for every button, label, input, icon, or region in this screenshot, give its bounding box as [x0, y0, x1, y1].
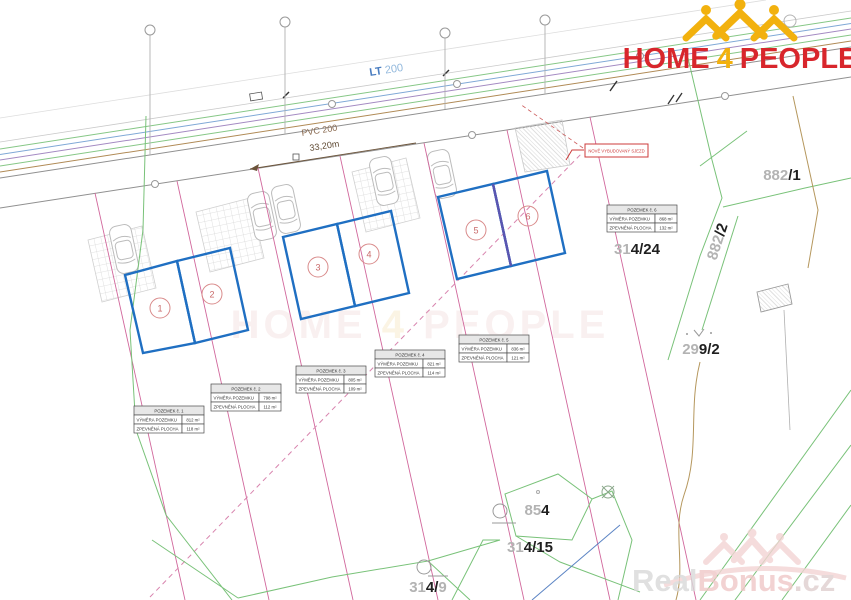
small-square-symbol	[293, 154, 299, 160]
division-line	[590, 117, 696, 600]
driveway-hatch-area	[515, 120, 570, 172]
parcel-label-314-9: 314/9	[409, 579, 447, 596]
table-cell: 132 m²	[659, 225, 673, 230]
manhole-circle-icon	[469, 132, 476, 139]
parcel-label-314-15: 314/15	[507, 539, 553, 556]
plot-table-1: POZEMEK č. 1 VÝMĚRA POZEMKU 812 m² ZPEVN…	[134, 406, 204, 433]
table-cell: 112 m²	[263, 404, 277, 409]
table-header: POZEMEK č. 5	[479, 337, 509, 342]
realbonus-crown-icon	[762, 544, 798, 562]
manhole-circle-icon	[329, 101, 336, 108]
parcel-boundary	[700, 131, 747, 166]
site-plan-drawing: LT200 PVC 200 33,20m HOME 4 PEOPLE	[0, 0, 851, 600]
manhole-circle-icon	[722, 93, 729, 100]
table-cell: 836 m²	[511, 346, 525, 351]
station-tick	[676, 93, 682, 102]
realbonus-logo-text: RealBonus.cz	[632, 563, 835, 598]
driveway-callout: NOVĚ VYBUDOVANÝ SJEZD	[566, 144, 648, 160]
table-header: POZEMEK č. 3	[316, 368, 346, 373]
home4people-crown-dot	[769, 5, 779, 15]
callout-text: NOVĚ VYBUDOVANÝ SJEZD	[588, 149, 644, 154]
table-cell: VÝMĚRA POZEMKU	[610, 216, 650, 221]
scrub-dot-icon	[686, 333, 688, 335]
parcel-label-299-2: 299/2	[682, 341, 720, 358]
table-cell: ZPEVNĚNÁ PLOCHA	[214, 404, 256, 409]
table-header: POZEMEK č. 1	[154, 408, 184, 413]
center-watermark: HOME 4 PEOPLE	[231, 303, 610, 347]
building-symbol	[757, 284, 792, 312]
table-cell: VÝMĚRA POZEMKU	[299, 377, 339, 382]
road-sign-symbol	[250, 92, 263, 101]
station-tick	[283, 92, 289, 98]
home4people-crown-dot	[735, 0, 746, 10]
parcel-label-314-24: 314/24	[614, 241, 661, 258]
parcel-boundary	[152, 540, 238, 598]
table-cell: 118 m²	[186, 426, 200, 431]
home4people-logo: HOME4PEOPLE	[623, 0, 851, 75]
table-cell: 805 m²	[348, 377, 362, 382]
station-tick	[668, 95, 674, 104]
dimension-label: 33,20m	[309, 139, 340, 153]
plot-table-2: POZEMEK č. 2 VÝMĚRA POZEMKU 798 m² ZPEVN…	[211, 384, 281, 411]
plot-number: 3	[315, 263, 320, 273]
parcel-label-882-2: 882/2	[704, 221, 732, 262]
plot-table-6: POZEMEK č. 6 VÝMĚRA POZEMKU 868 m² ZPEVN…	[607, 205, 677, 232]
realbonus-crown-dot	[776, 533, 784, 541]
table-cell: 868 m²	[659, 216, 673, 221]
table-cell: 798 m²	[263, 395, 277, 400]
division-line	[507, 130, 610, 600]
table-cell: ZPEVNĚNÁ PLOCHA	[610, 225, 652, 230]
plot-number: 1	[157, 304, 162, 314]
realbonus-crown-dot	[720, 533, 728, 541]
table-cell: 121 m²	[511, 355, 525, 360]
station-tick	[610, 81, 617, 91]
table-cell: 109 m²	[348, 386, 362, 391]
utility-line-blue	[532, 525, 620, 600]
survey-station-icon	[145, 25, 155, 35]
watermark-text: HOME 4 PEOPLE	[231, 303, 610, 347]
table-cell: 821 m²	[427, 361, 441, 366]
site-plan-canvas: LT200 PVC 200 33,20m HOME 4 PEOPLE	[0, 0, 851, 600]
parcel-boundary	[130, 116, 232, 600]
scrub-dot-icon	[710, 332, 712, 334]
plot-table-5: POZEMEK č. 5 VÝMĚRA POZEMKU 836 m² ZPEVN…	[459, 335, 529, 362]
table-header: POZEMEK č. 4	[395, 352, 425, 357]
table-cell: VÝMĚRA POZEMKU	[378, 361, 418, 366]
parcel-labels: 882/1 882/2 314/24 299/2 854 314/15 314/…	[409, 167, 801, 596]
home4people-crown-dot	[701, 5, 711, 15]
plot-table-4: POZEMEK č. 4 VÝMĚRA POZEMKU 821 m² ZPEVN…	[375, 350, 445, 377]
table-cell: VÝMĚRA POZEMKU	[137, 417, 177, 422]
plot-number: 6	[525, 212, 530, 222]
pipe-label-lt200: LT200	[369, 62, 404, 79]
dimension-arrow-icon	[250, 164, 259, 171]
manhole-circle-icon	[152, 181, 159, 188]
map-symbols	[417, 329, 712, 576]
realbonus-crown-dot	[748, 529, 757, 538]
table-cell: ZPEVNĚNÁ PLOCHA	[137, 426, 179, 431]
parcel-label-882-1: 882/1	[763, 167, 801, 184]
table-cell: ZPEVNĚNÁ PLOCHA	[462, 355, 504, 360]
survey-station-icon	[440, 28, 450, 38]
table-header: POZEMEK č. 6	[627, 207, 657, 212]
point-marker-icon	[537, 491, 540, 494]
table-header: POZEMEK č. 2	[231, 386, 261, 391]
table-cell: 812 m²	[186, 417, 200, 422]
table-cell: VÝMĚRA POZEMKU	[462, 346, 502, 351]
survey-station-icon	[540, 15, 550, 25]
realbonus-watermark: RealBonus.cz	[632, 529, 846, 599]
plot-number: 2	[209, 290, 214, 300]
manhole-circle-icon	[454, 81, 461, 88]
table-cell: ZPEVNĚNÁ PLOCHA	[378, 370, 420, 375]
table-cell: 114 m²	[427, 370, 441, 375]
plot-number: 4	[366, 250, 371, 260]
plot-table-3: POZEMEK č. 3 VÝMĚRA POZEMKU 805 m² ZPEVN…	[296, 366, 366, 393]
survey-station-icon	[280, 17, 290, 27]
table-cell: VÝMĚRA POZEMKU	[214, 395, 254, 400]
plot-number: 5	[473, 226, 478, 236]
plot-5-6-divider	[493, 184, 511, 266]
parcel-label-854: 854	[524, 502, 550, 519]
table-cell: ZPEVNĚNÁ PLOCHA	[299, 386, 341, 391]
boundary-line	[784, 310, 790, 430]
